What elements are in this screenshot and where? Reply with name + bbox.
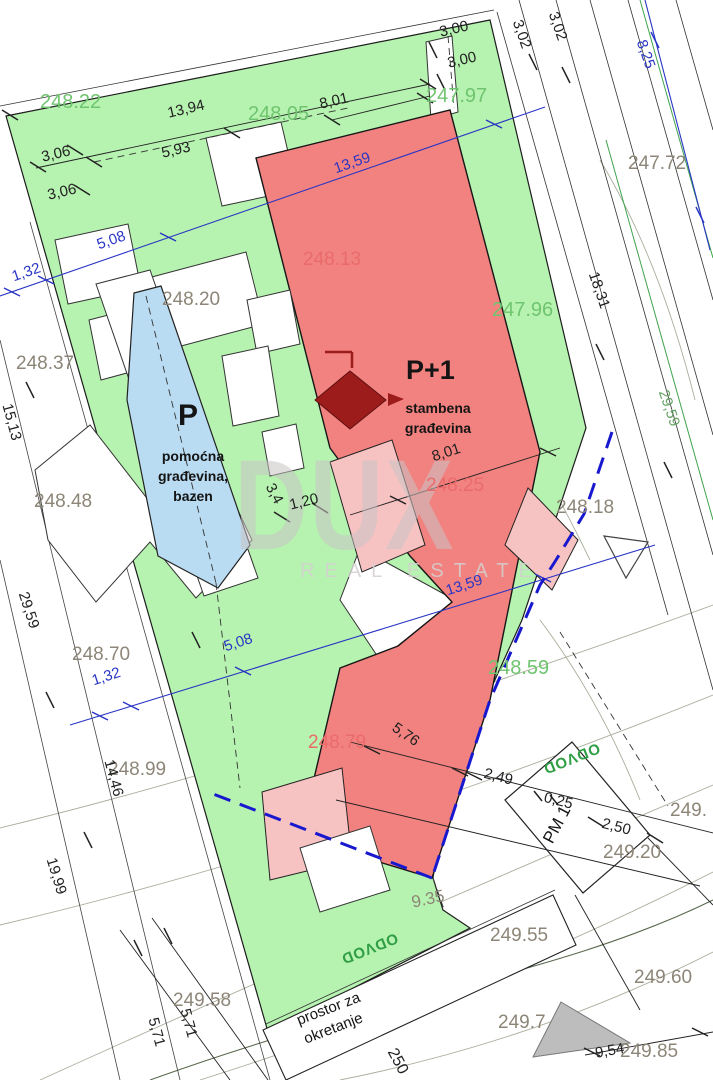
dim-3-06-b: 3,06 bbox=[46, 181, 78, 203]
elevation-249-60: 249.60 bbox=[634, 968, 692, 988]
dim-1-32-upper: 1,32 bbox=[10, 260, 43, 284]
dim-13-59-lower: 13,59 bbox=[444, 572, 485, 599]
elevation-248-22: 248.22 bbox=[40, 92, 101, 113]
plan-labels: 248.22 248.05 247.97 247.96 248.59 247.7… bbox=[0, 0, 713, 1080]
dim-3-00-b: 3,00 bbox=[446, 49, 478, 71]
elevation-247-97: 247.97 bbox=[426, 86, 487, 107]
site-plan: DUX REAL ESTATE 248.22 248.05 247.97 247… bbox=[0, 0, 713, 1080]
elevation-248-70: 248.70 bbox=[72, 645, 130, 665]
elevation-248-13: 248.13 bbox=[303, 250, 361, 270]
elevation-248-05: 248.05 bbox=[248, 104, 309, 125]
drain-label-a: ODVOD bbox=[338, 929, 400, 966]
aux-building-label: P bbox=[178, 400, 198, 432]
main-building-desc-line2: građevina bbox=[390, 418, 486, 438]
elevation-248-37: 248.37 bbox=[16, 354, 74, 374]
elevation-249-85: 249.85 bbox=[620, 1042, 678, 1062]
dim-2-49: 2,49 bbox=[482, 766, 514, 788]
dim-8-25: 8,25 bbox=[633, 38, 657, 71]
aux-building-desc-line2: građevina, bbox=[138, 466, 248, 486]
elevation-248-20: 248.20 bbox=[162, 290, 220, 310]
dim-5-71-a: 5,71 bbox=[145, 1016, 168, 1048]
dim-8-01-mid: 8,01 bbox=[430, 441, 463, 465]
main-building-label: P+1 bbox=[406, 356, 455, 384]
dim-29-59-left: 29,59 bbox=[15, 590, 42, 631]
dim-1-32-lower: 1,32 bbox=[90, 665, 123, 689]
dim-2-50: 2,50 bbox=[600, 816, 632, 838]
dim-8-01-top: 8,01 bbox=[318, 90, 350, 112]
dim-5-76: 5,76 bbox=[389, 720, 422, 750]
contour-label-250: 250 bbox=[383, 1046, 410, 1077]
elevation-248-25: 248.25 bbox=[426, 476, 484, 496]
dim-13-94: 13,94 bbox=[166, 98, 206, 122]
dim-1-20: 1,20 bbox=[288, 491, 320, 513]
drain-label-b: ODVOD bbox=[540, 739, 602, 776]
dim-5-71-b: 5,71 bbox=[177, 1007, 200, 1039]
elevation-9-35: 9.35 bbox=[410, 887, 446, 911]
dim-3-02-a: 3,02 bbox=[509, 18, 533, 51]
dim-5-93: 5,93 bbox=[160, 139, 192, 161]
dim-5-08-lower: 5,08 bbox=[222, 631, 255, 655]
turning-area-label: prostor za okretanje bbox=[294, 988, 371, 1049]
main-building-desc-line1: stambena bbox=[390, 398, 486, 418]
dim-18-31: 18,31 bbox=[585, 270, 612, 311]
elevation-249-7: 249.7 bbox=[498, 1013, 546, 1033]
elevation-248-18: 248.18 bbox=[556, 498, 614, 518]
dim-3-02-b: 3,02 bbox=[545, 10, 569, 43]
dim-3-4: 3,4 bbox=[262, 481, 286, 507]
dim-15-13: 15,13 bbox=[0, 402, 24, 442]
aux-building-desc-line1: pomoćna bbox=[138, 446, 248, 466]
elevation-248-48: 248.48 bbox=[34, 492, 92, 512]
dim-5-08-upper: 5,08 bbox=[95, 228, 128, 252]
dim-3-00-a: 3,00 bbox=[438, 18, 470, 40]
aux-building-description: pomoćna građevina, bazen bbox=[138, 446, 248, 506]
dim-19-99: 19,99 bbox=[43, 856, 69, 897]
elevation-248-79: 248.79 bbox=[308, 733, 366, 753]
elevation-247-72: 247.72 bbox=[628, 154, 686, 174]
dim-3-06-a: 3,06 bbox=[40, 143, 72, 165]
elevation-249-55: 249.55 bbox=[490, 926, 548, 946]
elevation-247-96: 247.96 bbox=[492, 300, 553, 321]
elevation-249-20: 249.20 bbox=[603, 843, 661, 863]
main-building-description: stambena građevina bbox=[390, 398, 486, 438]
elevation-249-58: 249.58 bbox=[173, 991, 231, 1011]
aux-building-desc-line3: bazen bbox=[138, 486, 248, 506]
dim-29-59-right: 29,59 bbox=[655, 388, 682, 429]
elevation-248-59: 248.59 bbox=[488, 658, 549, 679]
dim-13-59-upper: 13,59 bbox=[332, 150, 373, 177]
parking-space-label: PM 1 bbox=[540, 803, 574, 846]
elevation-249-clipped: 249. bbox=[670, 801, 707, 821]
